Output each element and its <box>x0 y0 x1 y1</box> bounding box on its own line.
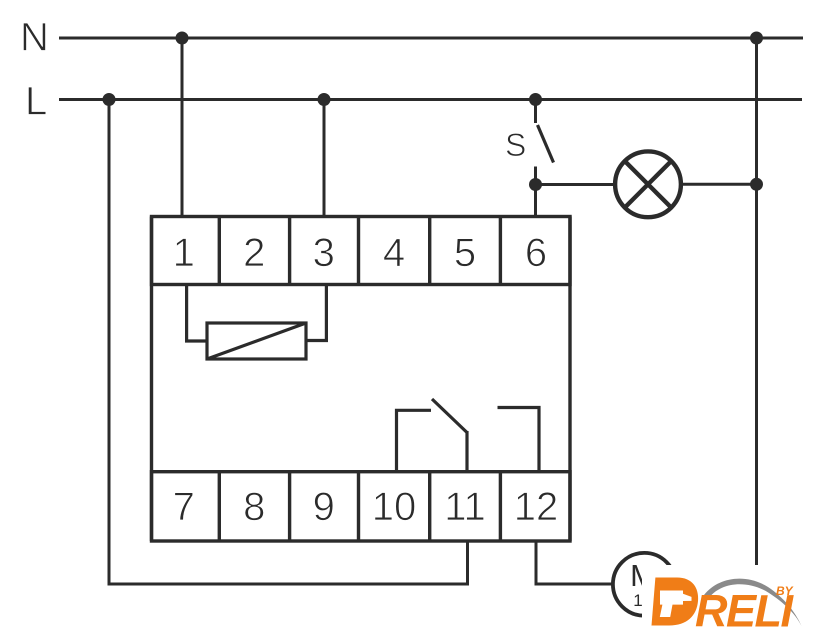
svg-text:7: 7 <box>173 485 195 529</box>
svg-text:5: 5 <box>454 231 476 275</box>
svg-text:10: 10 <box>372 485 417 529</box>
svg-text:8: 8 <box>243 485 265 529</box>
svg-text:12: 12 <box>514 485 559 529</box>
svg-text:11: 11 <box>444 485 486 529</box>
svg-text:4: 4 <box>383 231 405 275</box>
svg-text:N: N <box>20 16 49 60</box>
svg-text:3: 3 <box>313 231 335 275</box>
svg-text:S: S <box>505 127 526 163</box>
svg-text:9: 9 <box>313 485 335 529</box>
svg-text:BY: BY <box>776 584 794 598</box>
svg-text:2: 2 <box>243 231 265 275</box>
svg-text:6: 6 <box>525 231 547 275</box>
svg-text:L: L <box>25 80 47 124</box>
svg-text:1: 1 <box>173 231 195 275</box>
